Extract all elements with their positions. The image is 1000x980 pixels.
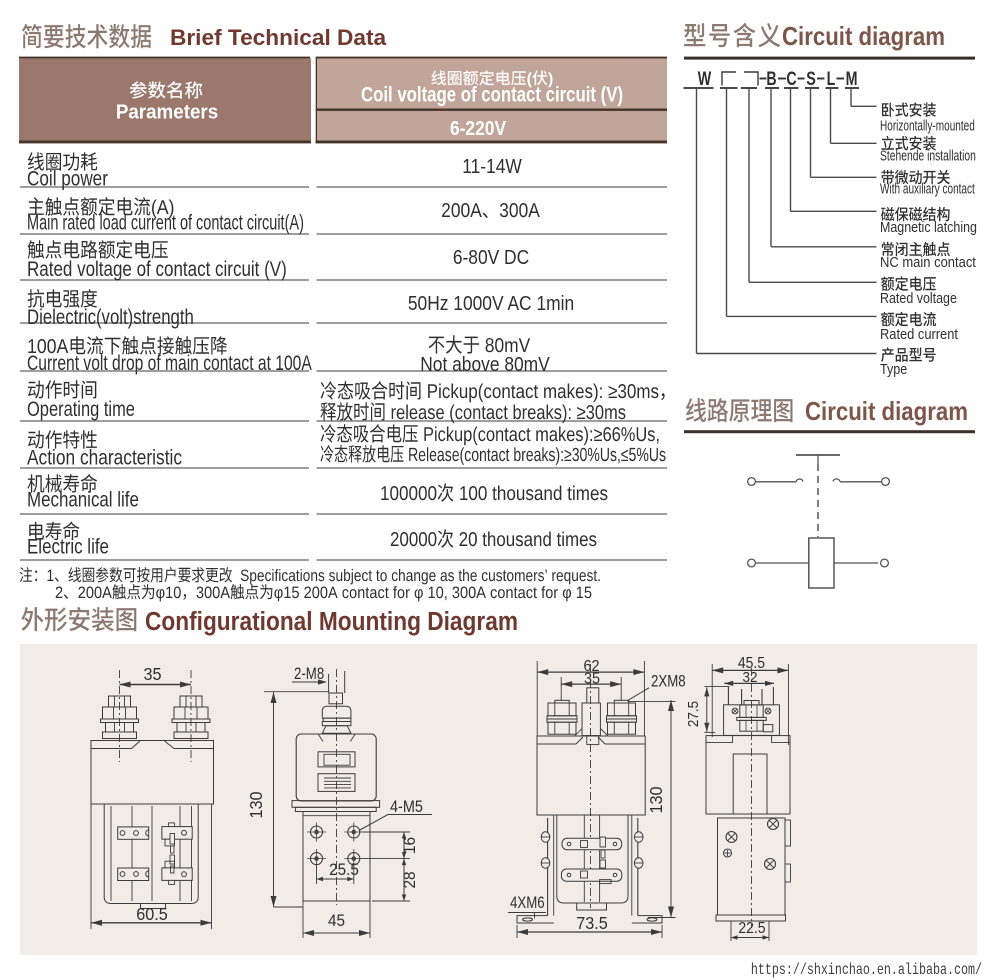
svg-text:Coil power: Coil power <box>27 168 108 191</box>
svg-text:4-M5: 4-M5 <box>390 798 423 816</box>
svg-text:Main rated load current of con: Main rated load current of contact circu… <box>27 211 304 234</box>
svg-text:130: 130 <box>646 786 666 813</box>
svg-text:Electric life: Electric life <box>27 536 109 559</box>
svg-text:M: M <box>846 68 858 89</box>
svg-text:Horizontally-mounted: Horizontally-mounted <box>880 116 975 134</box>
svg-text:130: 130 <box>246 791 266 818</box>
svg-text:45: 45 <box>328 911 345 930</box>
svg-text:Magnetic latching: Magnetic latching <box>880 219 977 235</box>
svg-text:35: 35 <box>584 670 600 688</box>
svg-text:Configurational Mounting Diagr: Configurational Mounting Diagram <box>145 608 518 637</box>
svg-text:Coil voltage of contact circui: Coil voltage of contact circuit (V) <box>361 84 623 107</box>
svg-text:Action characteristic: Action characteristic <box>27 447 182 470</box>
svg-text:S: S <box>806 68 816 89</box>
svg-text:60.5: 60.5 <box>136 904 168 924</box>
svg-text:Current volt drop of main cont: Current volt drop of main contact at 100… <box>27 351 312 375</box>
svg-text:Rated current: Rated current <box>880 325 958 342</box>
svg-text:Not above 80mV: Not above 80mV <box>420 353 550 375</box>
svg-text:4XM6: 4XM6 <box>510 894 545 913</box>
svg-text:11-14W: 11-14W <box>462 155 522 177</box>
svg-text:Rated voltage: Rated voltage <box>880 290 957 306</box>
svg-text:Operating time: Operating time <box>27 397 135 420</box>
svg-text:Mechanical life: Mechanical life <box>27 489 139 512</box>
svg-text:Dielectric(volt)strength: Dielectric(volt)strength <box>27 306 194 329</box>
svg-text:50Hz 1000V AC 1min: 50Hz 1000V AC 1min <box>408 292 574 314</box>
svg-text:25.5: 25.5 <box>329 860 359 879</box>
svg-text:C: C <box>786 68 796 89</box>
svg-text:6-220V: 6-220V <box>450 117 507 139</box>
svg-text:2XM8: 2XM8 <box>651 672 686 691</box>
svg-text:28: 28 <box>400 871 419 888</box>
svg-text:22.5: 22.5 <box>738 920 765 937</box>
svg-text:6-80V DC: 6-80V DC <box>453 246 529 268</box>
svg-text:With auxiliary contact: With auxiliary contact <box>880 179 975 197</box>
svg-text:35: 35 <box>143 664 161 684</box>
svg-text:Type: Type <box>880 360 908 377</box>
svg-text:B: B <box>766 68 776 89</box>
svg-text:L: L <box>827 68 836 89</box>
svg-text:W: W <box>698 68 712 89</box>
svg-text:73.5: 73.5 <box>576 913 608 933</box>
svg-text:Circuit diagram: Circuit diagram <box>782 22 945 51</box>
svg-text:Parameters: Parameters <box>116 101 218 124</box>
svg-text:27.5: 27.5 <box>685 701 702 727</box>
svg-text:NC main contact: NC main contact <box>880 253 976 270</box>
svg-text:16: 16 <box>400 837 419 854</box>
svg-text:Rated voltage of contact circu: Rated voltage of contact circuit (V) <box>27 258 287 281</box>
svg-text:https://shxinchao.en.alibaba.c: https://shxinchao.en.alibaba.com/ <box>751 961 982 979</box>
svg-text:Stehende installation: Stehende installation <box>880 147 976 164</box>
svg-text:Circuit diagram: Circuit diagram <box>805 397 968 426</box>
svg-text:Brief Technical Data: Brief Technical Data <box>170 25 387 50</box>
